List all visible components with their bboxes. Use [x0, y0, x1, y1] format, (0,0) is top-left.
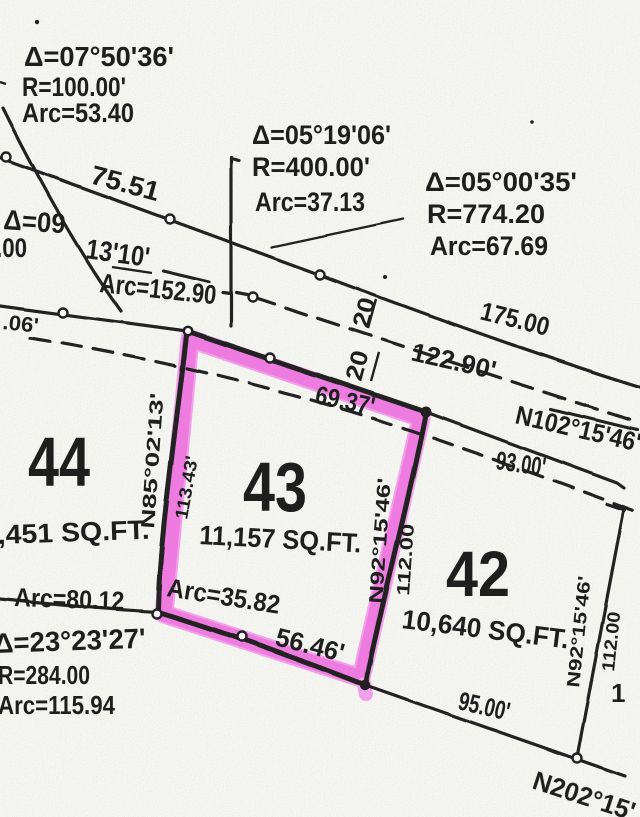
svg-text:,451 SQ.FT.: ,451 SQ.FT. [0, 515, 150, 550]
svg-text:R=284.00: R=284.00 [0, 660, 90, 690]
svg-text:1: 1 [611, 678, 625, 708]
svg-text:Δ=05°19'06': Δ=05°19'06' [252, 120, 391, 150]
svg-text:Arc=53.40: Arc=53.40 [22, 98, 134, 128]
svg-text:R=400.00': R=400.00' [252, 152, 370, 182]
svg-text:.06': .06' [1, 311, 39, 338]
svg-text:Arc=80.12: Arc=80.12 [14, 582, 125, 616]
svg-text:43: 43 [243, 448, 307, 526]
svg-text:Arc=37.13: Arc=37.13 [255, 187, 365, 217]
svg-text:42: 42 [446, 538, 510, 610]
svg-text:Arc=115.94: Arc=115.94 [0, 690, 115, 720]
svg-text:.00: .00 [0, 233, 27, 263]
svg-text:R=774.20: R=774.20 [427, 199, 545, 229]
svg-text:Δ=05°00'35': Δ=05°00'35' [425, 167, 577, 197]
svg-text:Δ=23°23'27': Δ=23°23'27' [0, 623, 146, 659]
svg-text:Δ=07°50'36': Δ=07°50'36' [24, 41, 174, 72]
svg-text:44: 44 [28, 423, 90, 501]
svg-text:Arc=67.69: Arc=67.69 [430, 231, 548, 261]
